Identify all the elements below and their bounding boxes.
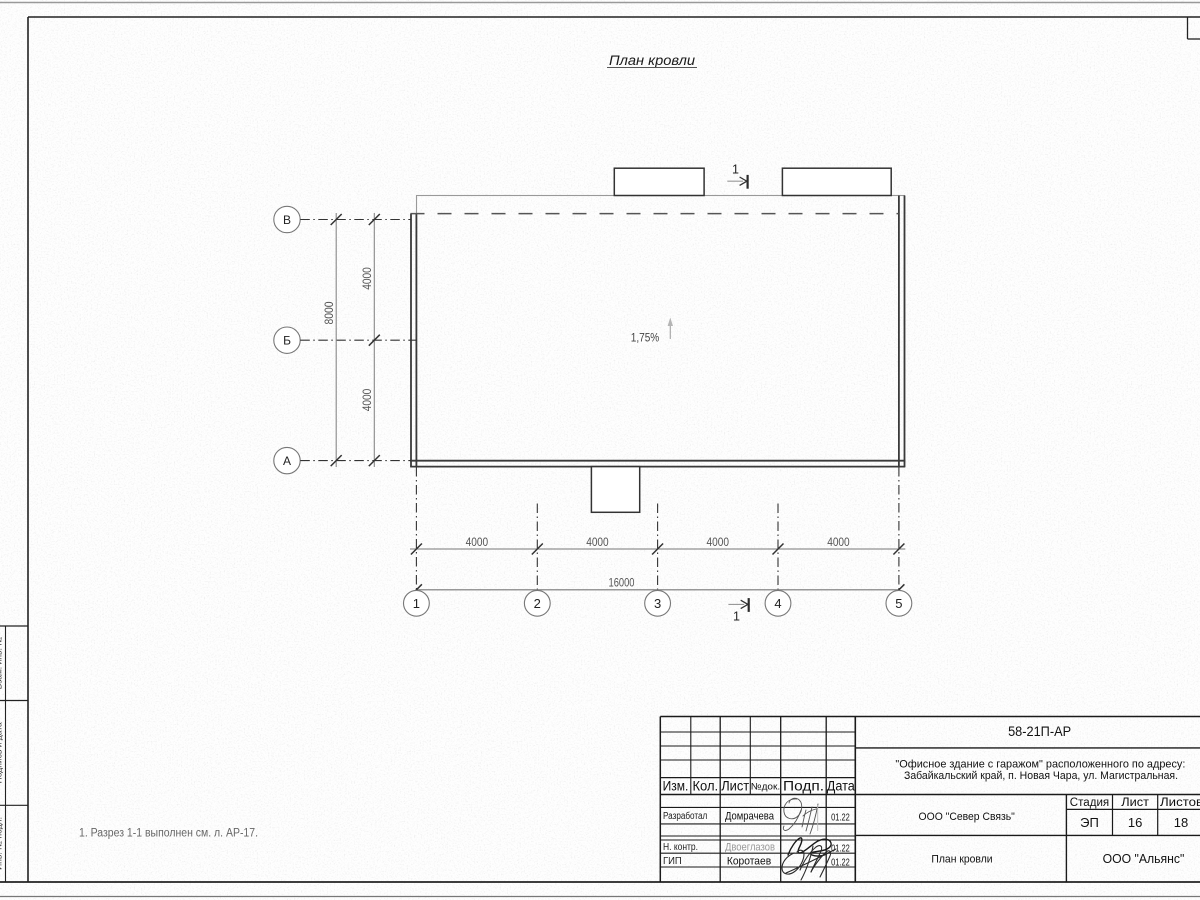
svg-text:4000: 4000 — [466, 535, 489, 549]
svg-text:1: 1 — [733, 610, 740, 624]
svg-text:А: А — [283, 454, 291, 468]
svg-text:58-21П-АР: 58-21П-АР — [1008, 724, 1071, 739]
svg-text:Коротаев: Коротаев — [727, 855, 771, 867]
svg-text:Подпись и дата: Подпись и дата — [0, 722, 4, 783]
svg-text:1: 1 — [413, 596, 420, 611]
svg-text:ЭП: ЭП — [1080, 815, 1099, 830]
svg-text:16000: 16000 — [609, 575, 635, 589]
svg-text:"Офисное здание с гаражом" рас: "Офисное здание с гаражом" расположенног… — [895, 758, 1185, 770]
svg-text:Домрачева: Домрачева — [725, 810, 775, 822]
svg-text:18: 18 — [1174, 815, 1188, 830]
svg-text:1,75%: 1,75% — [631, 331, 660, 345]
svg-text:5: 5 — [895, 596, 902, 611]
svg-text:1. Разрез 1-1 выполнен см. л.: 1. Разрез 1-1 выполнен см. л. АР-17. — [79, 827, 258, 839]
svg-text:Стадия: Стадия — [1070, 797, 1109, 809]
svg-text:01.22: 01.22 — [831, 856, 850, 868]
svg-text:Н. контр.: Н. контр. — [663, 842, 698, 853]
svg-text:3: 3 — [654, 596, 661, 611]
svg-text:1: 1 — [732, 163, 739, 177]
svg-text:Кол.: Кол. — [692, 779, 718, 794]
svg-text:План кровли: План кровли — [609, 53, 696, 68]
svg-text:01.22: 01.22 — [831, 842, 850, 854]
svg-text:Лист: Лист — [1121, 797, 1149, 809]
svg-text:В: В — [283, 213, 291, 227]
svg-text:ООО "Север Связь": ООО "Север Связь" — [919, 811, 1015, 823]
svg-text:ГИП: ГИП — [663, 856, 682, 867]
svg-text:Листов: Листов — [1160, 797, 1200, 809]
svg-text:Взам. инв. №: Взам. инв. № — [0, 637, 4, 690]
svg-text:Изм.: Изм. — [663, 779, 689, 794]
svg-text:4000: 4000 — [360, 267, 374, 290]
svg-text:8000: 8000 — [322, 301, 336, 324]
svg-text:4000: 4000 — [360, 388, 374, 411]
svg-text:Подп.: Подп. — [783, 779, 824, 794]
svg-text:Разработал: Разработал — [663, 810, 707, 822]
svg-text:План кровли: План кровли — [931, 853, 992, 865]
svg-text:Лист: Лист — [721, 779, 749, 794]
svg-text:4000: 4000 — [827, 535, 850, 549]
svg-text:Забайкальский край, п. Новая Ч: Забайкальский край, п. Новая Чара, ул. М… — [904, 770, 1178, 782]
svg-text:Б: Б — [283, 334, 291, 348]
svg-text:4000: 4000 — [586, 535, 609, 549]
svg-text:16: 16 — [1128, 815, 1142, 830]
svg-text:Инв. № подл.: Инв. № подл. — [0, 817, 4, 870]
svg-text:2: 2 — [534, 596, 541, 611]
svg-text:ООО "Альянс": ООО "Альянс" — [1103, 852, 1185, 866]
svg-text:№док.: №док. — [751, 782, 780, 793]
svg-text:4: 4 — [774, 596, 781, 611]
svg-text:01.22: 01.22 — [831, 811, 850, 823]
svg-text:Двоеглазов: Двоеглазов — [725, 841, 775, 853]
svg-text:Дата: Дата — [827, 779, 855, 794]
svg-text:4000: 4000 — [707, 535, 730, 549]
